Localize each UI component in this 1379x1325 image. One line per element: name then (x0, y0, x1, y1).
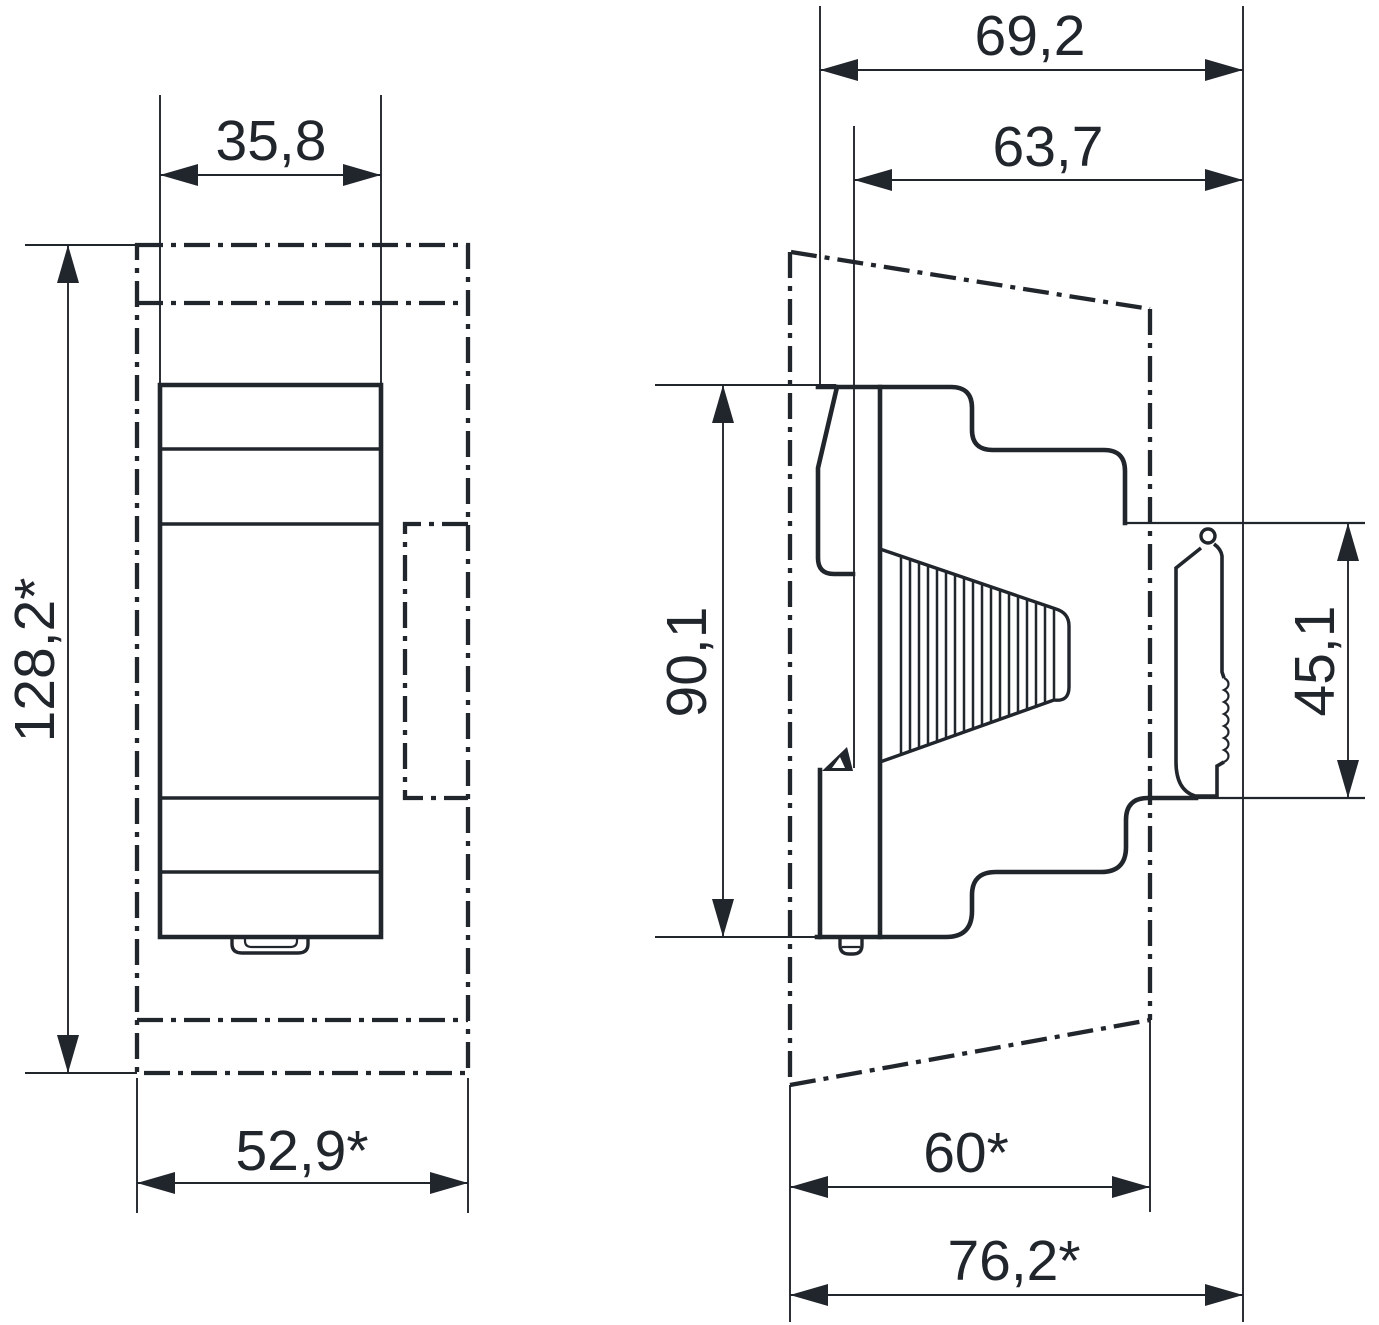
dim-label-side-depth-max: 76,2* (947, 1229, 1080, 1293)
arrow-left-icon (790, 1284, 828, 1306)
ventilation-fins (901, 556, 1054, 755)
dim-front-width-top: 35,8 (160, 95, 381, 385)
side-envelope-outline (790, 252, 1150, 1085)
arrow-left-icon (820, 59, 858, 81)
side-view: 69,2 63,7 90,1 45,1 60* (655, 4, 1365, 1322)
arrow-down-icon (57, 1035, 79, 1073)
arrow-left-icon (790, 1176, 828, 1198)
side-envelope-top-slant (791, 252, 1150, 309)
dim-side-height-body: 90,1 (655, 385, 734, 937)
arrow-down-icon (1337, 760, 1359, 798)
arrow-right-icon (1205, 59, 1243, 81)
front-view: 35,8 128,2* 52,9* (3, 95, 468, 1213)
arrow-left-icon (137, 1172, 175, 1194)
clip-lever-outline (1176, 544, 1224, 796)
technical-drawing-page: 35,8 128,2* 52,9* (0, 0, 1379, 1325)
arrow-up-icon (57, 245, 79, 283)
arrow-down-icon (712, 899, 734, 937)
arrow-right-icon (1112, 1176, 1150, 1198)
front-device-body (160, 385, 381, 953)
side-bottom-steps-outline (817, 798, 1196, 937)
dim-side-depth-max: 76,2* (790, 1229, 1243, 1306)
side-device-body (817, 387, 1196, 954)
front-body-outline (160, 385, 381, 937)
side-envelope-bottom-slant (790, 1020, 1150, 1085)
dim-label-front-height-overall: 128,2* (3, 578, 67, 743)
front-rail-zone-rect (405, 524, 468, 798)
arrow-right-icon (430, 1172, 468, 1194)
front-envelope-rect (137, 245, 468, 1073)
arrow-right-icon (343, 164, 381, 186)
dim-label-side-height-rail: 45,1 (1283, 606, 1347, 717)
din-rail-clip (1176, 529, 1229, 796)
dim-label-side-depth-body: 63,7 (993, 115, 1104, 179)
dim-label-front-width-top: 35,8 (216, 109, 327, 173)
dim-label-side-depth-overall: 69,2 (975, 4, 1086, 68)
dim-side-height-rail: 45,1 (1283, 523, 1359, 798)
dim-side-depth-lower: 60* (790, 1121, 1150, 1198)
arrow-left-icon (160, 164, 198, 186)
side-vent-wedge-outline (880, 549, 1069, 762)
dim-front-width-bottom: 52,9* (137, 1078, 468, 1213)
side-rear-hook-upper (818, 387, 853, 574)
dim-front-height-overall: 128,2* (3, 245, 137, 1073)
clip-pivot-pin (1201, 529, 1215, 543)
arrow-up-icon (1337, 523, 1359, 561)
side-bottom-clip (840, 937, 862, 954)
arrow-right-icon (1205, 1284, 1243, 1306)
dim-side-depth-overall: 69,2 (820, 4, 1243, 81)
side-top-steps-outline (818, 387, 1125, 523)
front-envelope-outline (137, 245, 468, 1073)
clip-serrated-edge (1224, 678, 1229, 762)
arrow-right-icon (1205, 169, 1243, 191)
din-device-dimension-drawing: 35,8 128,2* 52,9* (0, 0, 1379, 1325)
dim-side-depth-body: 63,7 (854, 115, 1243, 191)
dim-label-side-depth-lower: 60* (923, 1121, 1009, 1185)
dim-label-side-height-body: 90,1 (655, 607, 719, 718)
arrow-left-icon (854, 169, 892, 191)
dim-label-front-width-bottom: 52,9* (235, 1119, 368, 1183)
arrow-up-icon (712, 385, 734, 423)
